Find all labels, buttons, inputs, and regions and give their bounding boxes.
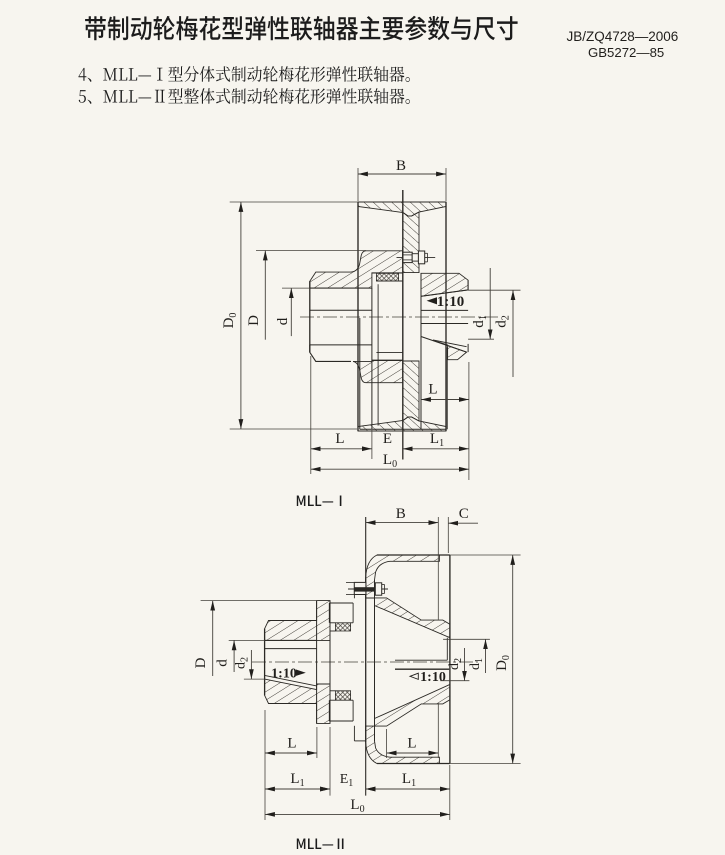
svg-text:1:10: 1:10 bbox=[420, 670, 446, 685]
svg-text:D: D bbox=[246, 315, 262, 326]
svg-text:1:10: 1:10 bbox=[271, 667, 297, 682]
svg-text:C: C bbox=[459, 506, 469, 522]
svg-text:L: L bbox=[407, 736, 416, 752]
svg-text:d: d bbox=[215, 659, 231, 667]
svg-text:JB/ZQ4728—2006: JB/ZQ4728—2006 bbox=[567, 29, 679, 44]
svg-text:B: B bbox=[396, 158, 406, 174]
svg-text:B: B bbox=[396, 506, 406, 522]
svg-text:L: L bbox=[335, 431, 344, 447]
svg-text:E: E bbox=[383, 431, 392, 447]
svg-text:L: L bbox=[287, 736, 296, 752]
svg-text:GB5272—85: GB5272—85 bbox=[588, 45, 664, 60]
svg-text:L: L bbox=[428, 382, 437, 398]
svg-text:d: d bbox=[275, 317, 291, 325]
svg-text:1:10: 1:10 bbox=[437, 294, 465, 310]
svg-text:D: D bbox=[193, 657, 209, 668]
